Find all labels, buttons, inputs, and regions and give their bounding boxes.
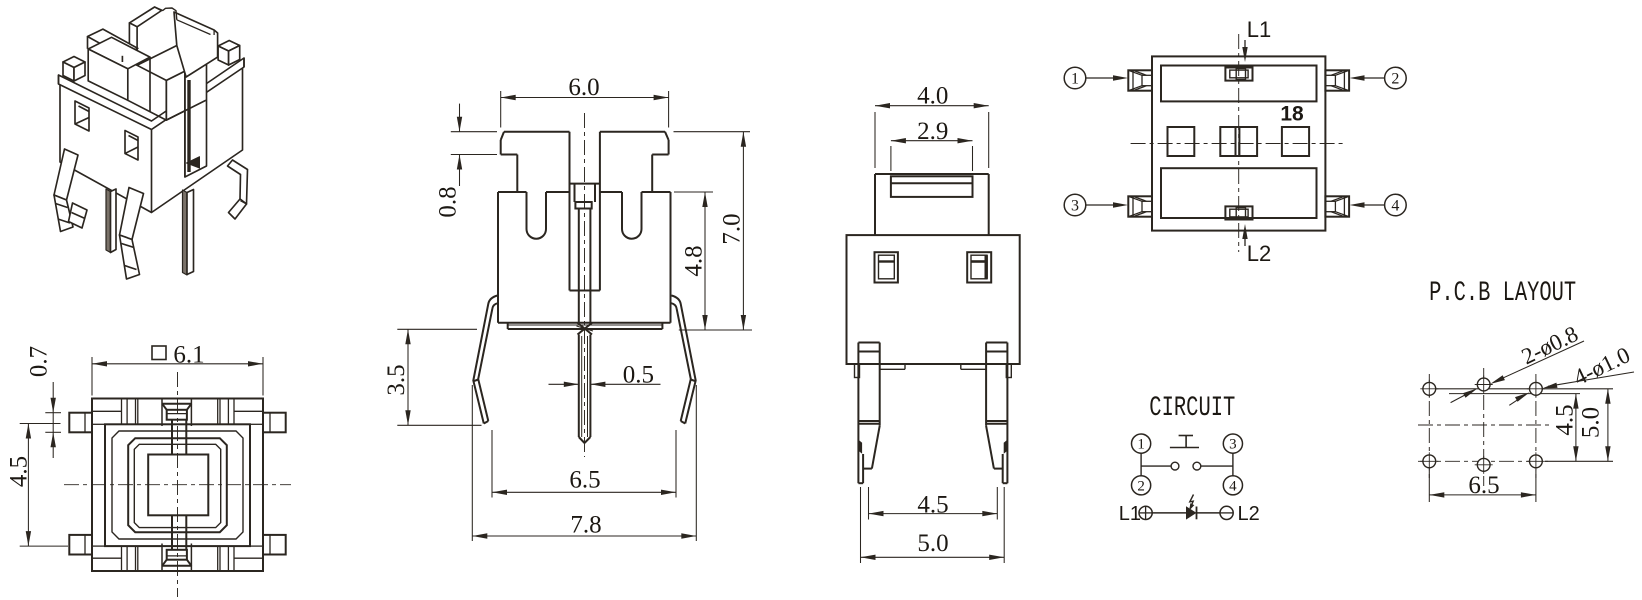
svg-text:4: 4 (1229, 478, 1237, 494)
svg-text:6.0: 6.0 (568, 74, 599, 101)
svg-text:3: 3 (1071, 197, 1079, 214)
svg-text:4.5: 4.5 (917, 492, 948, 519)
svg-text:L1: L1 (1119, 503, 1141, 525)
svg-text:0.8: 0.8 (435, 186, 462, 217)
svg-text:5.0: 5.0 (1578, 407, 1605, 438)
svg-text:1: 1 (1137, 437, 1145, 453)
svg-text:4.5: 4.5 (1552, 404, 1579, 435)
svg-text:3: 3 (1229, 437, 1237, 453)
svg-text:5.0: 5.0 (917, 530, 948, 557)
svg-text:4: 4 (1391, 197, 1399, 214)
svg-text:2: 2 (1137, 478, 1145, 494)
svg-text:6.5: 6.5 (569, 467, 600, 494)
svg-text:4.8: 4.8 (681, 245, 708, 276)
svg-text:2: 2 (1391, 70, 1399, 87)
svg-text:L2: L2 (1247, 241, 1271, 266)
svg-text:6.5: 6.5 (1468, 472, 1499, 499)
svg-text:0.5: 0.5 (623, 362, 654, 389)
svg-text:L1: L1 (1247, 17, 1271, 42)
svg-text:L2: L2 (1238, 503, 1260, 525)
svg-text:6.1: 6.1 (173, 342, 204, 369)
svg-text:7.0: 7.0 (719, 213, 746, 244)
svg-text:4.5: 4.5 (6, 456, 33, 487)
svg-text:P.C.B LAYOUT: P.C.B LAYOUT (1429, 278, 1576, 309)
svg-text:18: 18 (1280, 103, 1304, 126)
svg-text:3.5: 3.5 (383, 364, 410, 395)
svg-text:0.7: 0.7 (26, 346, 53, 377)
svg-text:7.8: 7.8 (570, 512, 601, 539)
svg-text:2.9: 2.9 (917, 118, 948, 145)
svg-text:1: 1 (1071, 70, 1079, 87)
svg-text:CIRCUIT: CIRCUIT (1149, 393, 1235, 424)
svg-text:4.0: 4.0 (917, 83, 948, 110)
